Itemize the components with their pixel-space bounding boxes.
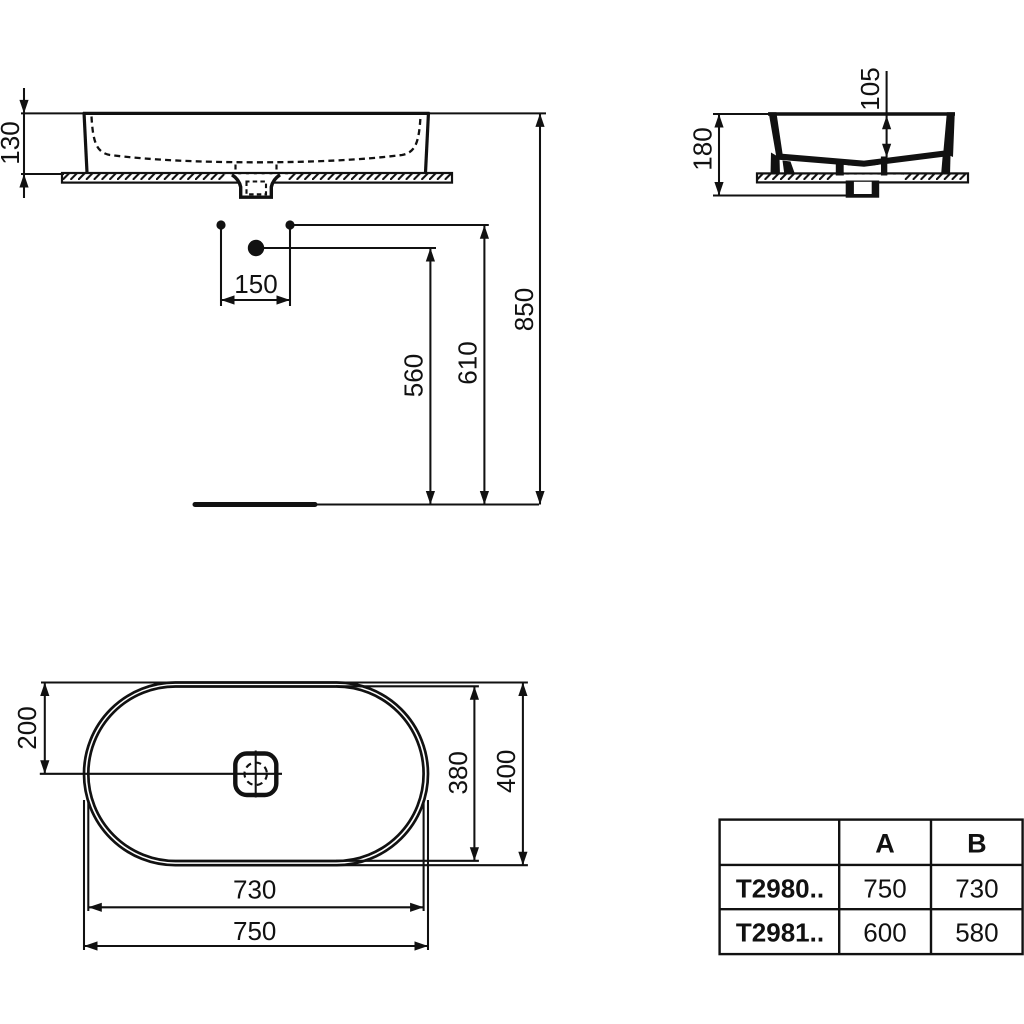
svg-text:730: 730	[233, 875, 276, 905]
svg-text:600: 600	[863, 918, 906, 948]
svg-text:T2981..: T2981..	[736, 918, 824, 948]
svg-text:560: 560	[399, 354, 429, 397]
svg-text:B: B	[967, 829, 987, 859]
svg-text:150: 150	[234, 269, 277, 299]
svg-text:130: 130	[0, 121, 25, 164]
svg-text:105: 105	[855, 67, 885, 110]
svg-text:A: A	[875, 829, 895, 859]
svg-text:380: 380	[443, 751, 473, 794]
svg-text:610: 610	[453, 341, 483, 384]
svg-text:400: 400	[491, 750, 521, 793]
svg-text:200: 200	[12, 706, 42, 749]
svg-text:580: 580	[955, 918, 998, 948]
svg-text:750: 750	[863, 873, 906, 903]
svg-text:T2980..: T2980..	[736, 873, 824, 903]
svg-text:180: 180	[688, 127, 718, 170]
svg-text:730: 730	[955, 873, 998, 903]
svg-text:750: 750	[233, 916, 276, 946]
svg-text:850: 850	[509, 288, 539, 331]
